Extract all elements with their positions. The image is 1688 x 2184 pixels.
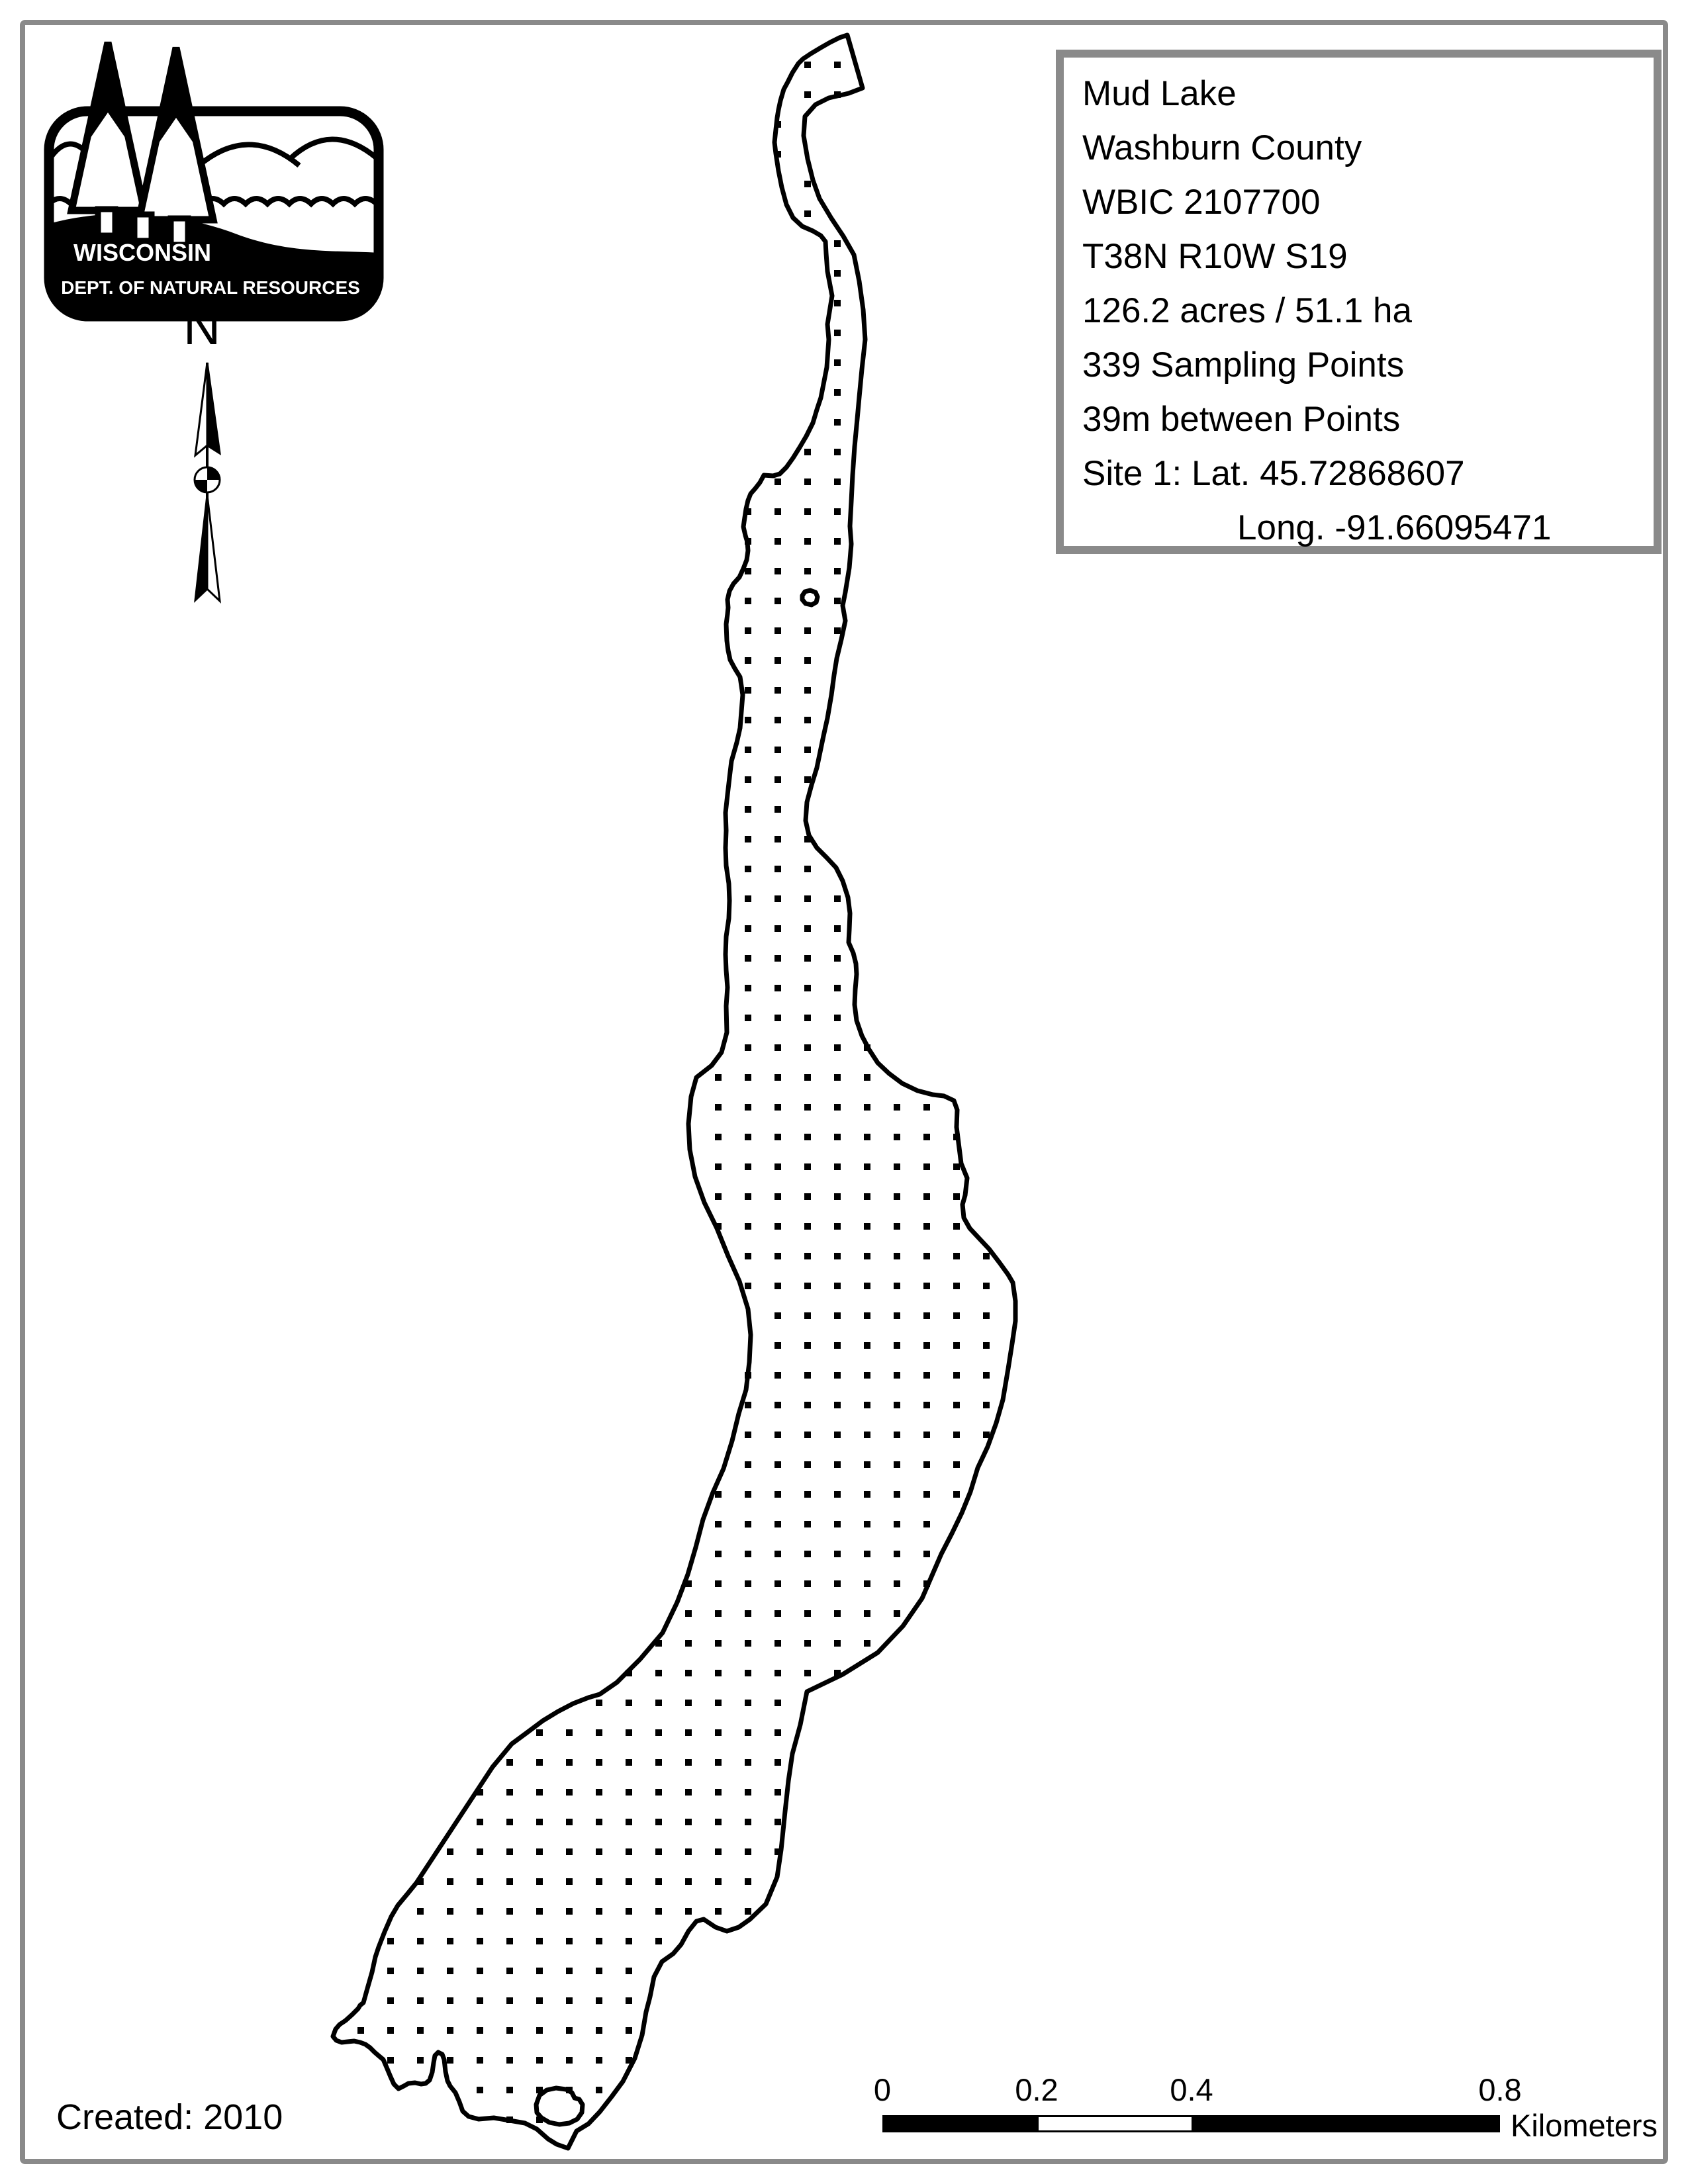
sampling-point [715, 1134, 722, 1140]
sampling-point [774, 806, 781, 813]
sampling-point [864, 1104, 870, 1111]
sampling-point [715, 1789, 722, 1796]
sampling-point [894, 1432, 900, 1438]
sampling-point [894, 1193, 900, 1200]
sampling-point [923, 1461, 930, 1468]
sampling-point [715, 1729, 722, 1736]
sampling-point [745, 895, 751, 902]
scale-unit-label: Kilometers [1511, 2107, 1658, 2144]
sampling-point [477, 1908, 483, 1915]
sampling-point [834, 598, 841, 604]
sampling-point [834, 985, 841, 991]
sampling-point [804, 1521, 811, 1527]
sampling-point [834, 1640, 841, 1647]
sampling-point [864, 1163, 870, 1170]
sampling-point [834, 1610, 841, 1617]
sampling-point [626, 1729, 632, 1736]
sampling-point [834, 1134, 841, 1140]
sampling-point [774, 478, 781, 485]
sampling-point [983, 1312, 990, 1319]
sampling-point [745, 538, 751, 545]
sampling-point [417, 1908, 424, 1915]
sampling-point [745, 1789, 751, 1796]
sampling-point [566, 1819, 573, 1825]
sampling-point [774, 1461, 781, 1468]
sampling-point [536, 2116, 543, 2123]
sampling-point [834, 300, 841, 306]
sampling-point [774, 776, 781, 783]
sampling-point [506, 1789, 513, 1796]
sampling-point [864, 1044, 870, 1051]
sampling-point [506, 1938, 513, 1944]
sampling-point [953, 1223, 960, 1230]
sampling-point [834, 1372, 841, 1379]
sampling-point [715, 1908, 722, 1915]
sampling-point [626, 2027, 632, 2034]
sampling-point [566, 1908, 573, 1915]
sampling-point [715, 1163, 722, 1170]
sampling-point [804, 1193, 811, 1200]
sampling-point [596, 1729, 602, 1736]
sampling-point [894, 1342, 900, 1349]
sampling-point [626, 2057, 632, 2064]
sampling-point [596, 1819, 602, 1825]
sampling-point [834, 1015, 841, 1021]
sampling-point [834, 538, 841, 545]
sampling-point [447, 1908, 453, 1915]
sampling-point [477, 2057, 483, 2064]
sampling-point [953, 1253, 960, 1259]
sampling-point [477, 2087, 483, 2093]
sampling-point [923, 1312, 930, 1319]
sampling-point [715, 1819, 722, 1825]
sampling-point [864, 1074, 870, 1081]
sampling-point [655, 1729, 662, 1736]
sampling-point [506, 1759, 513, 1766]
sampling-point [804, 1074, 811, 1081]
sampling-point [834, 568, 841, 574]
sampling-point [477, 2027, 483, 2034]
sampling-point [804, 449, 811, 455]
sampling-point [745, 1640, 751, 1647]
sampling-point [804, 1342, 811, 1349]
sampling-point [387, 2027, 394, 2034]
sampling-point [923, 1402, 930, 1408]
sampling-point [834, 1312, 841, 1319]
sampling-point [774, 1432, 781, 1438]
sampling-point [774, 657, 781, 664]
sampling-point [774, 1551, 781, 1557]
info-lake-name: Mud Lake [1082, 67, 1654, 121]
sampling-point [983, 1432, 990, 1438]
sampling-point [626, 1848, 632, 1855]
sampling-point [715, 1521, 722, 1527]
sampling-point [894, 1104, 900, 1111]
sampling-point [685, 1610, 692, 1617]
sampling-point [953, 1372, 960, 1379]
sampling-point [774, 687, 781, 694]
sampling-point [894, 1521, 900, 1527]
sampling-point [804, 508, 811, 515]
sampling-point [685, 1759, 692, 1766]
sampling-point [745, 1878, 751, 1885]
sampling-point [745, 1402, 751, 1408]
sampling-point [417, 1938, 424, 1944]
scale-tick-0: 0 [874, 2071, 891, 2108]
sampling-point [864, 1551, 870, 1557]
sampling-point [596, 1789, 602, 1796]
sampling-point [745, 1372, 751, 1379]
sampling-point [834, 91, 841, 98]
sampling-point [715, 1193, 722, 1200]
sampling-point [804, 1134, 811, 1140]
sampling-point [804, 210, 811, 217]
sampling-point [626, 1968, 632, 1974]
sampling-point [774, 598, 781, 604]
sampling-point [804, 717, 811, 723]
sampling-point [745, 1819, 751, 1825]
sampling-point [774, 955, 781, 962]
sampling-point [745, 1283, 751, 1289]
info-point-spacing: 39m between Points [1082, 392, 1654, 447]
sampling-point [864, 1342, 870, 1349]
north-arrow-icon [156, 347, 259, 612]
sampling-point [626, 1908, 632, 1915]
sampling-point [715, 1848, 722, 1855]
sampling-point [774, 1729, 781, 1736]
sampling-point [983, 1372, 990, 1379]
sampling-point [774, 1580, 781, 1587]
sampling-point [596, 1878, 602, 1885]
sampling-point [774, 1610, 781, 1617]
sampling-point [774, 1104, 781, 1111]
sampling-point [387, 1968, 394, 1974]
sampling-point [834, 1074, 841, 1081]
sampling-point [864, 1610, 870, 1617]
sampling-point [715, 1580, 722, 1587]
sampling-point [447, 1878, 453, 1885]
sampling-point [596, 1759, 602, 1766]
sampling-point [745, 1759, 751, 1766]
sampling-point [477, 1997, 483, 2004]
info-sampling-count: 339 Sampling Points [1082, 338, 1654, 392]
sampling-point [417, 2057, 424, 2064]
sampling-point [774, 895, 781, 902]
sampling-point [774, 1312, 781, 1319]
sampling-point [566, 1878, 573, 1885]
sampling-point [774, 1789, 781, 1796]
sampling-point [477, 1848, 483, 1855]
sampling-point [834, 1670, 841, 1676]
sampling-point [894, 1610, 900, 1617]
sampling-point [745, 1044, 751, 1051]
sampling-point [834, 508, 841, 515]
sampling-point [655, 1640, 662, 1647]
sampling-point [715, 1878, 722, 1885]
sampling-point [715, 1104, 722, 1111]
sampling-point [864, 1580, 870, 1587]
sampling-point [745, 1104, 751, 1111]
sampling-point [655, 1848, 662, 1855]
sampling-point [894, 1402, 900, 1408]
sampling-point [626, 1670, 632, 1676]
info-site1-lat: Site 1: Lat. 45.72868607 [1082, 447, 1654, 501]
sampling-point [864, 1283, 870, 1289]
sampling-point [745, 1074, 751, 1081]
sampling-point [685, 1729, 692, 1736]
sampling-point [715, 1491, 722, 1498]
sampling-point [774, 1700, 781, 1706]
logo-text-dnr: DEPT. OF NATURAL RESOURCES [61, 277, 360, 298]
sampling-point [923, 1283, 930, 1289]
sampling-point [477, 1968, 483, 1974]
sampling-point [774, 1819, 781, 1825]
sampling-point [774, 1074, 781, 1081]
sampling-point [923, 1342, 930, 1349]
sampling-point [506, 2057, 513, 2064]
sampling-point [804, 1372, 811, 1379]
sampling-point [536, 1789, 543, 1796]
sampling-point [804, 1670, 811, 1676]
sampling-point [804, 1580, 811, 1587]
sampling-point [923, 1163, 930, 1170]
sampling-point [864, 1521, 870, 1527]
sampling-point [804, 1104, 811, 1111]
sampling-point [447, 2057, 453, 2064]
info-area: 126.2 acres / 51.1 ha [1082, 284, 1654, 338]
sampling-point [536, 1878, 543, 1885]
sampling-point [566, 1968, 573, 1974]
sampling-point [804, 1640, 811, 1647]
sampling-point [774, 1491, 781, 1498]
sampling-point [655, 1819, 662, 1825]
sampling-point [774, 1521, 781, 1527]
sampling-point [774, 985, 781, 991]
sampling-point [566, 1759, 573, 1766]
sampling-point [745, 1134, 751, 1140]
sampling-point [983, 1283, 990, 1289]
sampling-point [685, 1700, 692, 1706]
sampling-point [477, 1789, 483, 1796]
sampling-point [715, 1670, 722, 1676]
sampling-point [774, 121, 781, 128]
sampling-point [745, 657, 751, 664]
sampling-point [745, 1432, 751, 1438]
sampling-point [834, 389, 841, 396]
sampling-point [774, 1283, 781, 1289]
logo-pine-trees-icon [71, 42, 213, 245]
sampling-point [804, 1402, 811, 1408]
sampling-point [745, 866, 751, 872]
sampling-point [745, 1848, 751, 1855]
sampling-point [536, 1968, 543, 1974]
sampling-point [566, 2057, 573, 2064]
sampling-point [536, 2057, 543, 2064]
sampling-point [834, 955, 841, 962]
sampling-point [774, 1640, 781, 1647]
info-site1-long: Long. -91.66095471 [1082, 501, 1654, 555]
sampling-point [894, 1223, 900, 1230]
sampling-point [506, 2087, 513, 2093]
sampling-point [745, 925, 751, 932]
sampling-point [417, 1968, 424, 1974]
sampling-point [804, 1551, 811, 1557]
sampling-point [685, 1640, 692, 1647]
sampling-point [536, 2027, 543, 2034]
sampling-point [715, 1759, 722, 1766]
sampling-point [715, 1223, 722, 1230]
sampling-point [715, 1074, 722, 1081]
sampling-point [774, 1223, 781, 1230]
sampling-point [655, 1878, 662, 1885]
sampling-point [923, 1372, 930, 1379]
sampling-point [745, 687, 751, 694]
sampling-point [566, 2087, 573, 2093]
sampling-point [894, 1551, 900, 1557]
created-label: Created: 2010 [56, 2097, 283, 2138]
sampling-point [953, 1312, 960, 1319]
sampling-point [864, 1402, 870, 1408]
sampling-point [745, 747, 751, 753]
sampling-point [745, 836, 751, 842]
sampling-point [685, 1819, 692, 1825]
sampling-point [685, 1908, 692, 1915]
sampling-point [953, 1134, 960, 1140]
sampling-point [804, 1253, 811, 1259]
sampling-point [834, 62, 841, 68]
sampling-point [804, 657, 811, 664]
sampling-point [655, 1908, 662, 1915]
sampling-point [715, 1551, 722, 1557]
sampling-point [834, 1461, 841, 1468]
sampling-point [774, 717, 781, 723]
sampling-point [834, 1551, 841, 1557]
sampling-point [983, 1342, 990, 1349]
sampling-point [804, 181, 811, 187]
sampling-point [745, 1163, 751, 1170]
sampling-point [804, 62, 811, 68]
sampling-point [596, 1908, 602, 1915]
sampling-point [506, 1997, 513, 2004]
lake-outline [333, 35, 1015, 2148]
sampling-point [774, 1670, 781, 1676]
sampling-point [894, 1163, 900, 1170]
sampling-point [774, 1402, 781, 1408]
sampling-point [804, 687, 811, 694]
sampling-point [536, 1908, 543, 1915]
sampling-point [745, 1223, 751, 1230]
sampling-point [953, 1193, 960, 1200]
sampling-point [804, 925, 811, 932]
sampling-point [447, 1848, 453, 1855]
sampling-point [417, 1878, 424, 1885]
sampling-point [536, 1819, 543, 1825]
sampling-point [864, 1461, 870, 1468]
sampling-point [387, 2057, 394, 2064]
sampling-point [864, 1253, 870, 1259]
sampling-point [804, 955, 811, 962]
sampling-point [655, 1700, 662, 1706]
sampling-point [834, 1521, 841, 1527]
sampling-point [834, 419, 841, 426]
sampling-point [774, 1015, 781, 1021]
sampling-point [745, 1670, 751, 1676]
sampling-point [715, 1700, 722, 1706]
sampling-point [923, 1223, 930, 1230]
sampling-point [834, 1253, 841, 1259]
sampling-point [387, 1938, 394, 1944]
wisconsin-dnr-logo: WISCONSIN DEPT. OF NATURAL RESOURCES [40, 33, 397, 338]
sampling-point [774, 151, 781, 158]
sampling-point [506, 1848, 513, 1855]
sampling-point [745, 1610, 751, 1617]
sampling-point [745, 568, 751, 574]
sampling-point [745, 776, 751, 783]
scalebar-segment-1 [882, 2115, 1039, 2132]
sampling-point [566, 1729, 573, 1736]
sampling-point [804, 568, 811, 574]
sampling-point [864, 1372, 870, 1379]
sampling-point [745, 1461, 751, 1468]
sampling-point [923, 1193, 930, 1200]
sampling-point [745, 985, 751, 991]
sampling-point [804, 747, 811, 753]
sampling-point [357, 2027, 364, 2034]
sampling-point [834, 895, 841, 902]
sampling-point [566, 1848, 573, 1855]
sampling-point [685, 1670, 692, 1676]
sampling-point [774, 1759, 781, 1766]
sampling-point [804, 1491, 811, 1498]
sampling-point [715, 1640, 722, 1647]
sampling-point [804, 1432, 811, 1438]
sampling-point [894, 1372, 900, 1379]
sampling-point [626, 1997, 632, 2004]
sampling-point [864, 1432, 870, 1438]
sampling-point [626, 1700, 632, 1706]
sampling-point [923, 1253, 930, 1259]
sampling-point [894, 1491, 900, 1498]
sampling-point [655, 1938, 662, 1944]
sampling-point [834, 1580, 841, 1587]
sampling-point [506, 1908, 513, 1915]
sampling-point [447, 2027, 453, 2034]
sampling-point [834, 925, 841, 932]
sampling-point [923, 1521, 930, 1527]
sampling-point [894, 1580, 900, 1587]
sampling-point [506, 2116, 513, 2123]
sampling-point [566, 1789, 573, 1796]
sampling-point [834, 627, 841, 634]
sampling-point [834, 449, 841, 455]
sampling-point [596, 1848, 602, 1855]
sampling-point [864, 1193, 870, 1200]
sampling-point [774, 538, 781, 545]
sampling-point [804, 1015, 811, 1021]
sampling-point [774, 1848, 781, 1855]
sampling-point [477, 1938, 483, 1944]
sampling-point [774, 1253, 781, 1259]
sampling-point [953, 1432, 960, 1438]
info-township: T38N R10W S19 [1082, 230, 1654, 284]
sampling-point [774, 925, 781, 932]
sampling-point [566, 1938, 573, 1944]
sampling-point [774, 1134, 781, 1140]
sampling-point [923, 1134, 930, 1140]
sampling-point [894, 1253, 900, 1259]
sampling-point [685, 1789, 692, 1796]
sampling-point [894, 1312, 900, 1319]
